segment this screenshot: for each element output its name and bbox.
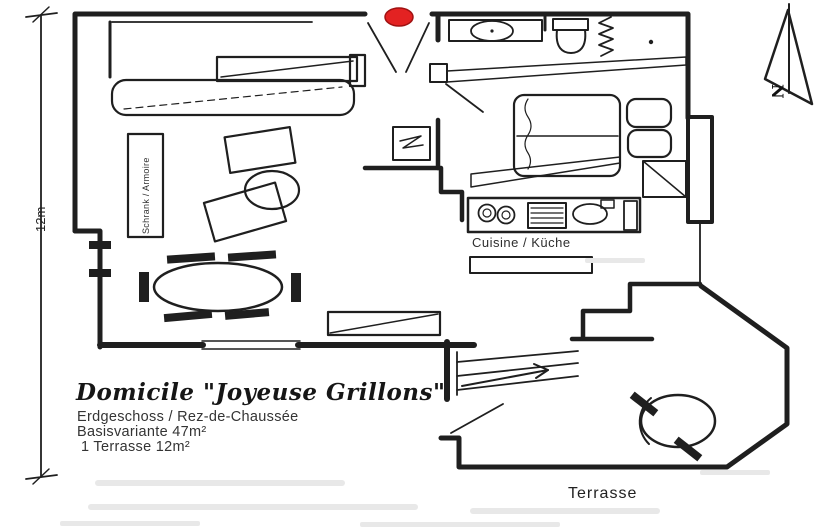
kitchen-sideboard	[470, 257, 592, 273]
stairs	[457, 351, 578, 395]
dining-set	[139, 250, 440, 335]
hall-partition	[447, 57, 686, 82]
stove-burner-2	[498, 207, 515, 224]
chair-top-1	[167, 252, 215, 263]
bathroom-fixtures	[449, 14, 653, 56]
chair-left	[139, 272, 149, 302]
terrace-label: Terrasse	[568, 485, 637, 502]
title-block: Domicile "Joyeuse Grillons" Erdgeschoss …	[75, 379, 445, 455]
terrace-chair-2	[674, 437, 703, 462]
pillow-1	[627, 99, 671, 127]
chair-right	[291, 273, 301, 302]
window-marker-left-2	[89, 269, 111, 277]
living-room-furniture: Schrank / Armoire	[112, 55, 365, 241]
stove-burner-1	[479, 205, 496, 222]
plan-title: Domicile "Joyeuse Grillons"	[75, 379, 445, 406]
chair-bottom-1	[164, 310, 213, 322]
floorplan-canvas: 12m	[0, 0, 840, 530]
door-handle-dot	[649, 40, 653, 44]
wardrobe-label: Schrank / Armoire	[141, 157, 151, 234]
counter-front-edge	[471, 157, 620, 187]
terrace: Terrasse	[441, 286, 787, 502]
plan-subtitle-3: 1 Terrasse 12m²	[81, 439, 190, 455]
kitchen-sink	[573, 204, 607, 224]
bedroom-furniture	[514, 95, 686, 197]
stepped-wall-terrace	[572, 284, 700, 339]
plan-subtitle-1: Erdgeschoss / Rez-de-Chaussée	[77, 409, 298, 425]
terrace-door-swing	[451, 404, 503, 433]
armchair-1	[225, 127, 296, 173]
toilet-bowl	[557, 30, 586, 53]
north-label: N	[768, 84, 787, 99]
hall-door-swing	[446, 84, 483, 112]
chair-top-2	[228, 250, 276, 261]
kitchen: Cuisine / Küche	[365, 120, 640, 273]
north-arrow: N	[765, 4, 812, 104]
window-marker-left-1	[89, 241, 111, 249]
window-bottom	[202, 341, 300, 349]
entrance	[368, 8, 686, 112]
dimension-line-left: 12m	[26, 7, 57, 484]
vanity-counter	[449, 20, 542, 41]
appliance-glyph	[400, 136, 423, 148]
duvet-wave	[525, 99, 531, 169]
plan-subtitle-2: Basisvariante 47m²	[77, 424, 207, 440]
appliance-box	[393, 127, 430, 160]
toilet-tank	[553, 19, 588, 30]
wall-pillar-right	[688, 117, 712, 222]
dimension-label: 12m	[33, 207, 48, 232]
door-swing-right	[406, 23, 429, 72]
entrance-marker-dot	[385, 8, 413, 26]
kitchen-step-wall	[365, 168, 462, 220]
pillow-2	[628, 130, 671, 157]
oven	[528, 203, 566, 228]
kitchen-label: Cuisine / Küche	[472, 235, 571, 250]
door-swing-left	[368, 23, 396, 72]
armchair-2	[204, 183, 286, 242]
radiator-coil	[599, 17, 613, 56]
dining-table	[154, 263, 282, 311]
